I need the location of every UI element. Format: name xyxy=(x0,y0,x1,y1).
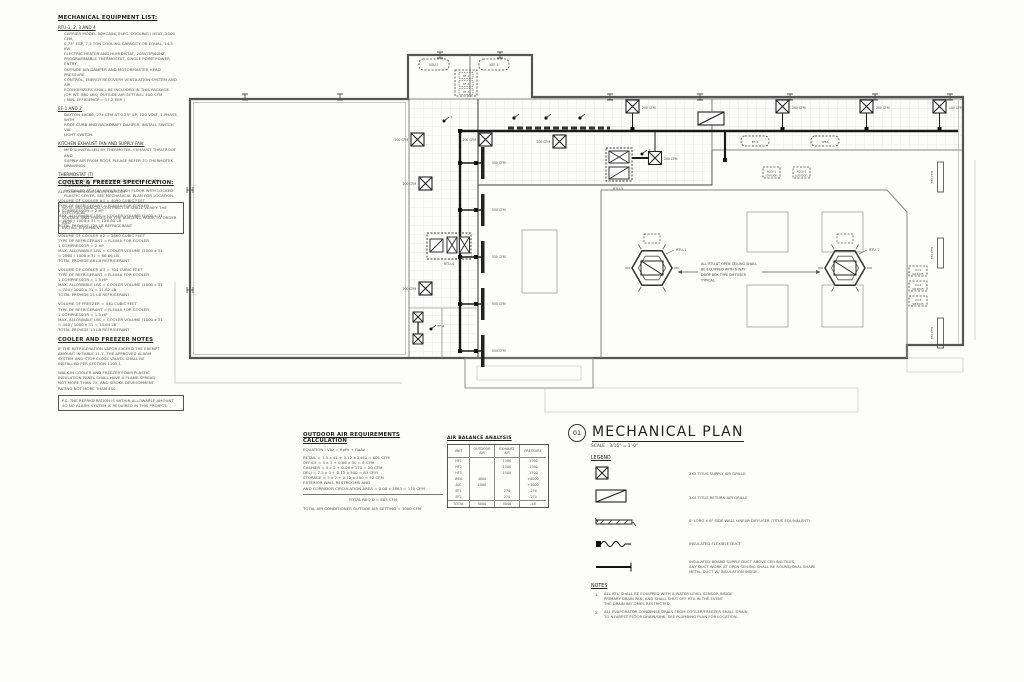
cu1-label: CU-1 xyxy=(915,268,922,272)
note-text: ALL RTU SHALL BE EQUIPPED WITH A WATER L… xyxy=(604,592,733,607)
cfm-label: 550 CFM xyxy=(492,255,506,259)
note-item: 2. ALL EVAPORATOR CONDENSE DRAIN FROM CO… xyxy=(595,610,838,620)
cooler-ps-box: P.S. THE REFRIGERATION IS WITHIN ALLOWAB… xyxy=(58,395,184,411)
cooler-notes-block: COOLER AND FREEZER NOTES IF THE REFRIGER… xyxy=(58,337,180,411)
legend-item: INSULATED BOARD SUPPLY DUCT ABOVE CEILIN… xyxy=(595,558,838,577)
legend-title: LEGEND xyxy=(591,456,838,461)
open-ceiling-note: ALL RTU AT OPEN CEILING SHALL BE EQUIPPE… xyxy=(678,262,820,283)
legend-label: 6' LONG x 6" SIDE WALL LINEAR DIFFUSER (… xyxy=(689,519,810,524)
cooler-spec-paragraph: VOLUME OF COOLER #3 = 704 CUBIC FEET TYP… xyxy=(58,267,180,297)
legend-label: INSULATED FLEXIBLE DUCT xyxy=(689,542,741,547)
legend-label: 2X4 TITUS RETURN AIR GRILLE xyxy=(689,496,748,501)
accu2-label: ACCU-2 xyxy=(797,170,807,174)
cfm-label: 200 CFM xyxy=(403,287,417,291)
thermostat-label: T xyxy=(648,149,651,153)
col-header: UNIT xyxy=(448,445,469,458)
note-number: 2. xyxy=(595,610,604,620)
return-grilles xyxy=(698,112,724,125)
detail-bubble: 01 xyxy=(568,424,586,442)
air-balance-header: UNIT OUTDOOR AIR EXHAUST AIR PRESSURE xyxy=(448,445,548,458)
cooler-spec-subtitle: ALL COMPRESSOR UNITS ON ROOF xyxy=(58,189,180,194)
cfm-label: 550 CFM xyxy=(492,208,506,212)
cfm-label: 200 CFM xyxy=(463,138,477,142)
page-title: MECHANICAL PLAN xyxy=(592,424,744,442)
cooler-spec-paragraphs: VOLUME OF COOLER #1 = 4090 CUBIC FEET TY… xyxy=(58,198,180,332)
cooler-spec-title: COOLER & FREEZER SPECIFICATION: xyxy=(58,180,180,186)
svg-text:ALL RTU AT OPEN CEILING SHALL: ALL RTU AT OPEN CEILING SHALL xyxy=(701,262,757,266)
cfm-label: 200 CFM xyxy=(395,138,409,142)
outdoor-air-total: TOTAL REQ'D = 883 CFM xyxy=(303,497,443,502)
cfm-label: 550 CFM xyxy=(930,326,934,339)
air-balance-title: AIR BALANCE ANALYSIS xyxy=(447,436,551,441)
rtu2-label: RTU-2 xyxy=(869,248,880,252)
total-pressure: -48 xyxy=(519,500,546,507)
cooler-notes-paragraph: WALK-IN COOLER AND FREEZER FOAM PLASTIC … xyxy=(58,370,180,390)
svg-text:TYPICAL: TYPICAL xyxy=(700,279,715,283)
thermostat-label: T xyxy=(450,116,453,120)
equipment-section-heading: THERMOSTAT (T) xyxy=(58,172,180,177)
hf2-label: HF-2 xyxy=(463,82,470,86)
mechanical-plan-sheet: { "equipment_list": { "title": "MECHANIC… xyxy=(0,0,1024,682)
outdoor-air-body: RETAIL = 7.5 x 41 + 0.12 x 2440 = 601 CF… xyxy=(303,455,443,491)
kef1-label: KEF-1 xyxy=(489,63,498,67)
legend-label: 2X2 TITUS SUPPLY AIR GRILLE xyxy=(689,472,746,477)
cu2-label: CU-2 xyxy=(915,283,922,287)
outdoor-air-title: OUTDOOR AIR REQUIREMENTS CALCULATION xyxy=(303,432,443,444)
cooler-spec-block: COOLER & FREEZER SPECIFICATION: ALL COMP… xyxy=(58,180,180,336)
cooler-spec-paragraph: VOLUME OF COOLER #2 = 2860 CUBIC FEET TY… xyxy=(58,233,180,263)
floor-fixtures xyxy=(522,212,863,327)
air-balance-table: UNIT OUTDOOR AIR EXHAUST AIR PRESSURE HF… xyxy=(447,444,549,508)
rtu4-label: RTU-4 xyxy=(444,262,455,266)
rtu3-label: RTU-3 xyxy=(613,187,623,191)
equipment-section: KITCHEN EXHAUST FAN AND SUPPLY FAN: MFD … xyxy=(58,141,180,167)
svg-text:DROP BOX TYPE DIFFUSER: DROP BOX TYPE DIFFUSER xyxy=(701,273,747,277)
ef1-label: EF-1 xyxy=(752,140,759,144)
total-outdoor: 5000 xyxy=(469,500,494,507)
cfm-label: 200 CFM xyxy=(792,106,806,110)
notes-list: 1. ALL RTU SHALL BE EQUIPPED WITH A WATE… xyxy=(568,592,838,620)
ef2-label: EF-2 xyxy=(438,324,445,328)
legend-item: INSULATED FLEXIBLE DUCT xyxy=(595,535,838,554)
legend-item: 6' LONG x 6" SIDE WALL LINEAR DIFFUSER (… xyxy=(595,512,838,531)
equipment-section-heading: RTU-1, 2, 3 AND 4 xyxy=(58,25,180,30)
cfm-label: 200 CFM xyxy=(642,106,656,110)
col-header: EXHAUST AIR xyxy=(494,445,519,458)
supply-duct-icon xyxy=(595,558,637,577)
cooler-notes-title: COOLER AND FREEZER NOTES xyxy=(58,337,180,343)
return-grille-icon xyxy=(595,488,637,508)
col-header: PRESSURE xyxy=(519,445,546,458)
flexible-duct-icon xyxy=(595,535,637,554)
equipment-section: EF-1 AND 2 DAYTON 4XC66, 274 CFM AT 0.25… xyxy=(58,106,180,137)
divider xyxy=(303,494,443,495)
on-roof-label: (ON ROOF) xyxy=(912,303,924,306)
on-roof-label: (ON ROOF) xyxy=(766,175,778,178)
equipment-section: RTU-1, 2, 3 AND 4 CARRIER MODEL 50HCA06,… xyxy=(58,25,180,102)
air-balance-block: AIR BALANCE ANALYSIS UNIT OUTDOOR AIR EX… xyxy=(447,436,551,508)
cfm-label: 200 CFM xyxy=(537,140,551,144)
outdoor-air-setting: TOTAL AIR CONDITIONER OUTSIDE AIR SETTIN… xyxy=(303,506,443,511)
equipment-list-sections: RTU-1, 2, 3 AND 4 CARRIER MODEL 50HCA06,… xyxy=(58,25,180,198)
plan-title-row: 01 MECHANICAL PLAN xyxy=(568,424,838,442)
svg-text:BE EQUIPPED WITH 6-WAY: BE EQUIPPED WITH 6-WAY xyxy=(701,268,746,272)
notes-title: NOTES xyxy=(591,584,838,589)
scale-note: SCALE : 3/16" = 1'-0" xyxy=(591,444,838,449)
wea-label: WEA xyxy=(822,140,830,144)
cfm-label: 200 CFM xyxy=(403,182,417,186)
equipment-section-body: MFD & INSTALLED BY THERMOTEK. EXHAUST TH… xyxy=(58,147,180,167)
outdoor-air-equation: EQUATION : Vbz = RpPz + RaAz xyxy=(303,447,443,452)
rtu1-label: RTU-1 xyxy=(676,248,687,252)
cfm-label: 550 CFM xyxy=(492,161,506,165)
supply-grille-icon xyxy=(595,465,637,484)
accu1-label: ACCU-1 xyxy=(767,170,777,174)
cfm-label: 100 CFM xyxy=(949,106,963,110)
cfm-label: 550 CFM xyxy=(930,246,934,259)
cooler-notes-paragraph: IF THE REFRIGERATION VAPOR EXCEED THE EX… xyxy=(58,346,180,366)
legend-item: 2X2 TITUS SUPPLY AIR GRILLE xyxy=(595,465,838,484)
ksu1-label: KSU-1 xyxy=(429,63,439,67)
cooler-notes-paragraphs: IF THE REFRIGERATION VAPOR EXCEED THE EX… xyxy=(58,346,180,391)
cu3-label: CU-3 xyxy=(915,298,922,302)
note-number: 1. xyxy=(595,592,604,607)
col-header: OUTDOOR AIR xyxy=(469,445,494,458)
equipment-section-body: CARRIER MODEL 50HCA06, ELEC. COOLING / H… xyxy=(58,31,180,102)
on-roof-label: (ON ROOF) xyxy=(912,273,924,276)
equipment-section-heading: KITCHEN EXHAUST FAN AND SUPPLY FAN: xyxy=(58,141,180,146)
equipment-list-title: MECHANICAL EQUIPMENT LIST: xyxy=(58,15,180,21)
legend-label: INSULATED BOARD SUPPLY DUCT ABOVE CEILIN… xyxy=(689,560,816,575)
air-balance-rows: HF1 1500 -1500 HF2 1500 -1500 HF3 1500 -… xyxy=(448,458,548,500)
total-label: TOTAL xyxy=(448,500,469,507)
cfm-label: 550 CFM xyxy=(492,349,506,353)
equipment-section-heading: EF-1 AND 2 xyxy=(58,106,180,111)
note-item: 1. ALL RTU SHALL BE EQUIPPED WITH A WATE… xyxy=(595,592,838,607)
on-roof-label: (ON ROOF) xyxy=(796,175,808,178)
equipment-section-body: DAYTON 4XC66, 274 CFM AT 0.25" SP, 120 V… xyxy=(58,112,180,137)
hf3-label: HF-3 xyxy=(463,90,470,94)
titleblock: 01 MECHANICAL PLAN SCALE : 3/16" = 1'-0"… xyxy=(568,424,838,620)
cfm-label: 200 CFM xyxy=(664,157,678,161)
linear-diffuser-icon xyxy=(595,512,637,531)
cfm-label: 550 CFM xyxy=(492,302,506,306)
total-exhaust: 5048 xyxy=(494,500,519,507)
cooler-spec-paragraph: VOLUME OF COOLER #1 = 4090 CUBIC FEET TY… xyxy=(58,198,180,228)
hf1-label: HF-1 xyxy=(463,74,470,78)
legend-item: 2X4 TITUS RETURN AIR GRILLE xyxy=(595,488,838,508)
on-roof-label: (ON ROOF) xyxy=(912,288,924,291)
note-text: ALL EVAPORATOR CONDENSE DRAIN FROM COOLE… xyxy=(604,610,748,620)
cooler-spec-paragraph: VOLUME OF FREEZER = 440 CUBIC FEET TYPE … xyxy=(58,301,180,331)
cfm-label: 550 CFM xyxy=(930,170,934,183)
cfm-label: 200 CFM xyxy=(876,106,890,110)
air-balance-total-row: TOTAL 5000 5048 -48 xyxy=(448,500,548,507)
outdoor-air-block: OUTDOOR AIR REQUIREMENTS CALCULATION EQU… xyxy=(303,432,443,511)
